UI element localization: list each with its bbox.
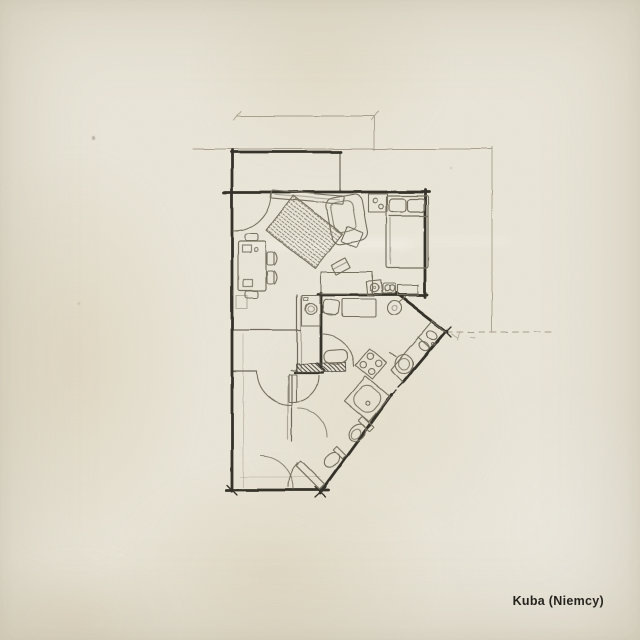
floor-plan-drawing bbox=[0, 0, 640, 640]
caption-label: Kuba (Niemcy) bbox=[513, 594, 604, 608]
scanned-floor-plan-photo: Kuba (Niemcy) bbox=[0, 0, 640, 640]
